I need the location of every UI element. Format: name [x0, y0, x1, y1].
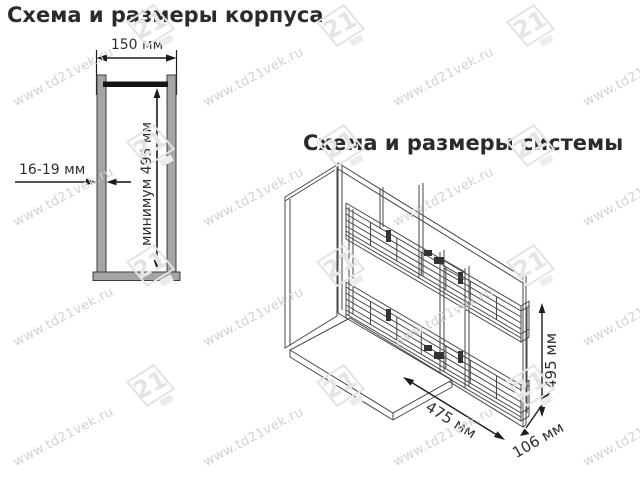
back-panel: [285, 165, 337, 348]
right-wall: [167, 75, 176, 272]
cabinet-diagram-title: Схема и размеры корпуса: [7, 3, 324, 27]
system-drawing: [285, 163, 550, 440]
bottom-panel: [93, 272, 180, 281]
cabinet-width-dimension: 150 мм: [102, 37, 172, 53]
cabinet-min-height-dimension: минимум 495 мм: [139, 113, 155, 255]
catalog-dimensions-image: www.td21vek.ruwww.td21vek.ruwww.td21vek.…: [0, 0, 640, 480]
technical-drawing: [0, 0, 640, 480]
wall-thickness-dimension: 16-19 мм: [19, 162, 85, 178]
left-wall: [97, 75, 106, 272]
system-diagram-title: Схема и размеры системы: [303, 131, 623, 155]
system-height-dimension: 495 мм: [542, 331, 560, 391]
top-rail-bar: [103, 82, 168, 88]
